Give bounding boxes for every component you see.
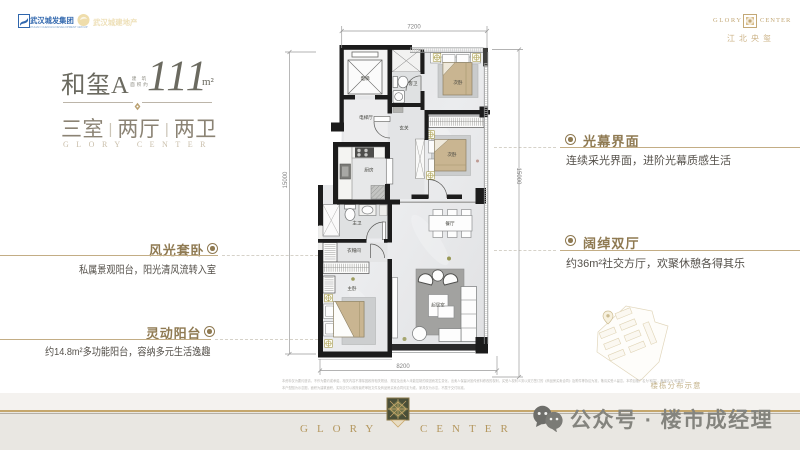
svg-text:电梯: 电梯	[360, 75, 370, 82]
svg-text:电梯厅: 电梯厅	[359, 114, 373, 121]
svg-text:次卧: 次卧	[447, 151, 457, 158]
svg-text:客卫: 客卫	[408, 80, 418, 87]
svg-text:8200: 8200	[396, 364, 410, 370]
svg-text:7200: 7200	[407, 25, 421, 31]
svg-text:主卫: 主卫	[352, 220, 362, 226]
svg-text:餐厅: 餐厅	[445, 220, 455, 227]
svg-text:主卧: 主卧	[347, 285, 357, 292]
svg-text:次卧: 次卧	[453, 79, 463, 86]
svg-text:起居室: 起居室	[431, 302, 445, 309]
svg-text:玄关: 玄关	[399, 125, 409, 132]
svg-text:15000: 15000	[283, 171, 289, 188]
svg-text:衣帽间: 衣帽间	[347, 247, 361, 254]
svg-text:厨房: 厨房	[364, 167, 374, 174]
svg-text:15000: 15000	[515, 168, 521, 185]
